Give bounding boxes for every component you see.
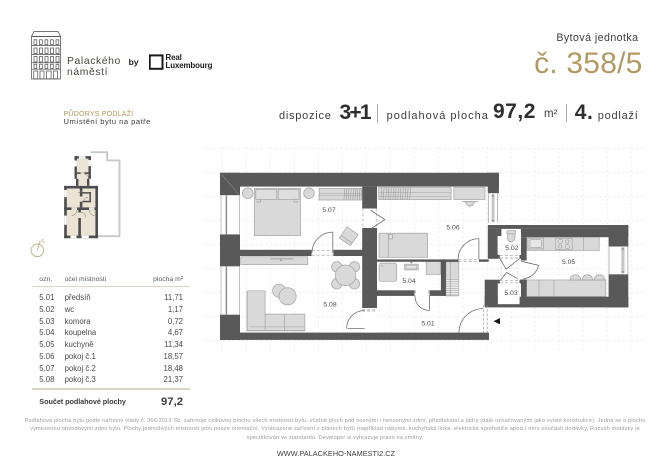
svg-text:5.02: 5.02 — [505, 245, 518, 252]
svg-text:5.07: 5.07 — [322, 207, 335, 214]
svg-text:5.01: 5.01 — [421, 320, 434, 327]
svg-text:5.05: 5.05 — [562, 259, 575, 266]
svg-text:S: S — [41, 239, 45, 245]
svg-text:5.03: 5.03 — [504, 290, 517, 297]
svg-text:5.06: 5.06 — [446, 225, 459, 232]
svg-text:5.04: 5.04 — [402, 278, 415, 285]
svg-text:5.08: 5.08 — [323, 301, 336, 308]
